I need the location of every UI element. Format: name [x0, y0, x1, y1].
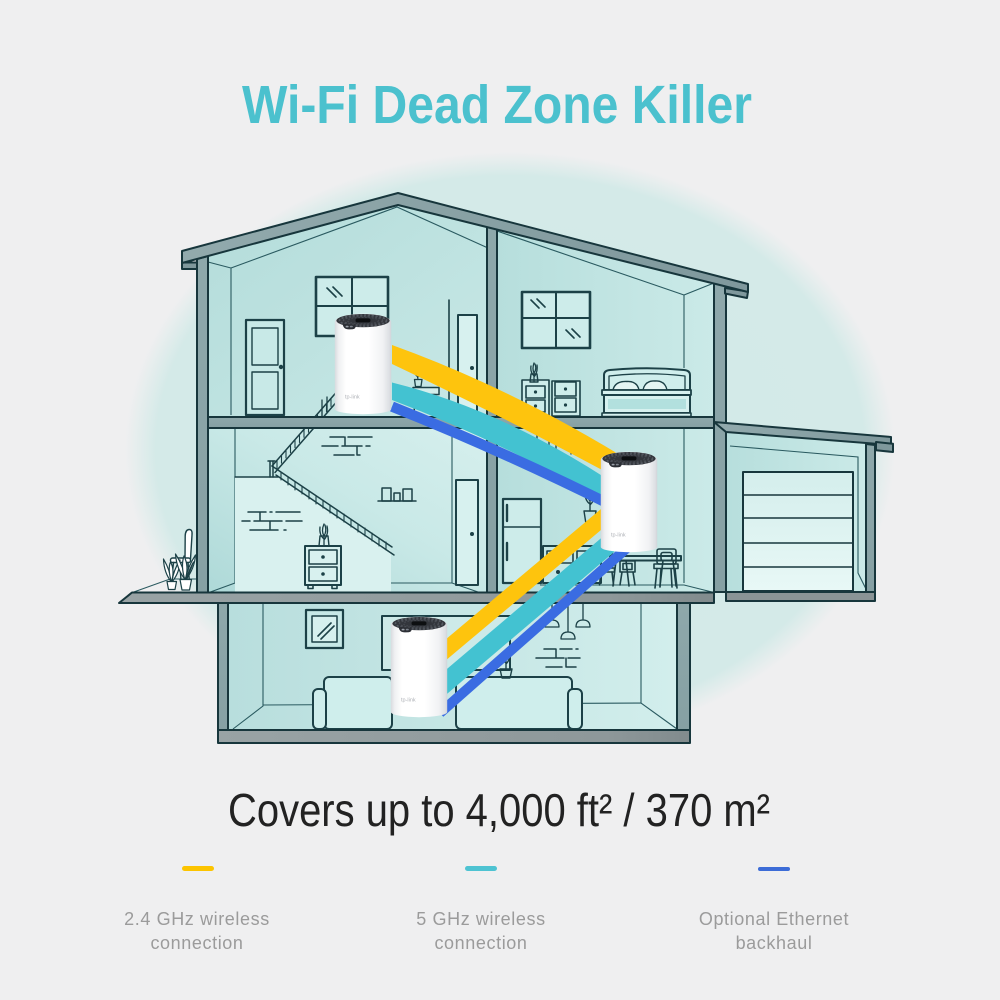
- svg-text:connection: connection: [150, 933, 243, 953]
- svg-text:connection: connection: [434, 933, 527, 953]
- svg-text:Covers up to 4,000 ft² / 370 m: Covers up to 4,000 ft² / 370 m²: [228, 784, 770, 836]
- svg-text:2.4 GHz wireless: 2.4 GHz wireless: [124, 909, 270, 929]
- svg-text:Optional Ethernet: Optional Ethernet: [699, 909, 849, 929]
- svg-text:Wi-Fi Dead Zone Killer: Wi-Fi Dead Zone Killer: [242, 75, 752, 135]
- svg-text:5 GHz wireless: 5 GHz wireless: [416, 909, 545, 929]
- svg-text:backhaul: backhaul: [736, 933, 813, 953]
